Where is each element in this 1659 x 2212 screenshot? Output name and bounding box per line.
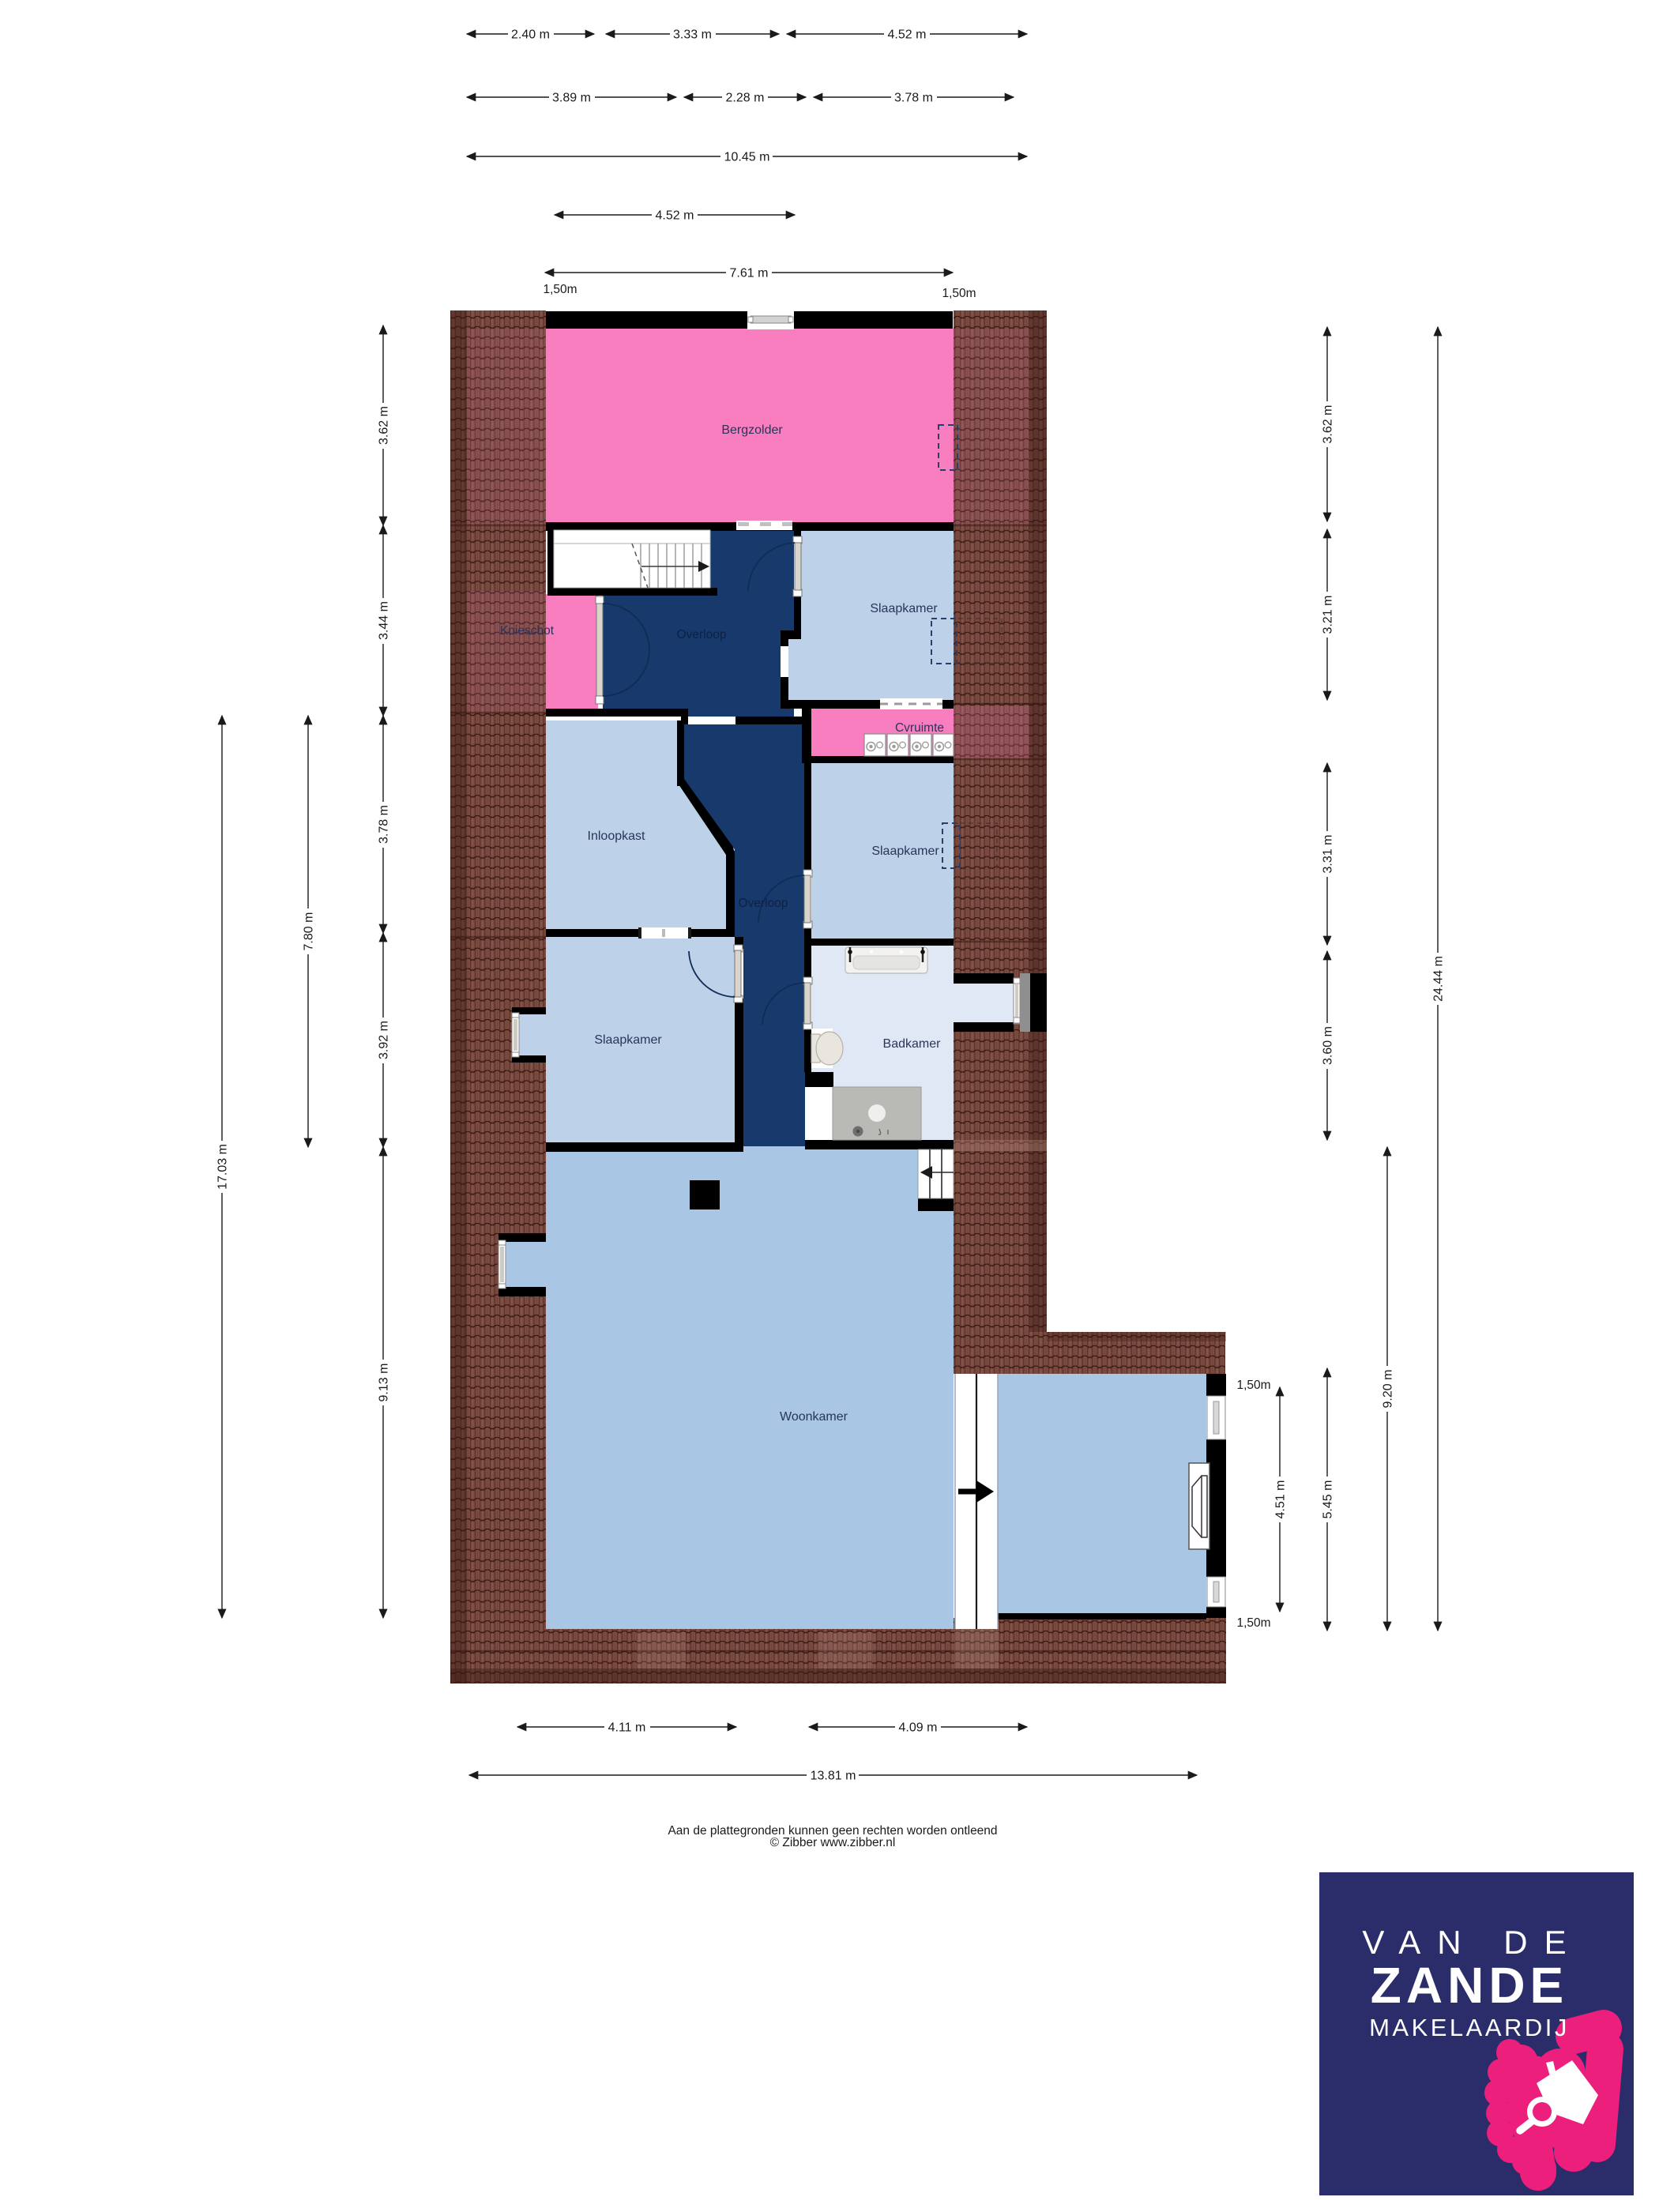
svg-text:3.31 m: 3.31 m (1322, 835, 1335, 874)
svg-text:3.44 m: 3.44 m (378, 601, 391, 640)
svg-text:3.62 m: 3.62 m (378, 406, 391, 445)
svg-text:4.52 m: 4.52 m (888, 28, 927, 42)
svg-text:7.80 m: 7.80 m (303, 912, 316, 951)
svg-text:3.89 m: 3.89 m (552, 92, 591, 105)
svg-text:Woonkamer: Woonkamer (780, 1410, 848, 1424)
svg-text:9.20 m: 9.20 m (1382, 1370, 1395, 1409)
svg-text:1,50m: 1,50m (1236, 1616, 1270, 1630)
svg-text:13.81 m: 13.81 m (811, 1770, 856, 1783)
svg-text:3.21 m: 3.21 m (1322, 596, 1335, 634)
svg-text:3.78 m: 3.78 m (894, 92, 933, 105)
svg-text:ZANDE: ZANDE (1371, 1957, 1568, 2014)
svg-text:17.03 m: 17.03 m (216, 1144, 230, 1190)
svg-text:Inloopkast: Inloopkast (588, 829, 645, 843)
svg-text:Slaapkamer: Slaapkamer (870, 602, 938, 615)
svg-text:7.61 m: 7.61 m (730, 267, 769, 280)
svg-text:10.45 m: 10.45 m (724, 151, 770, 164)
svg-text:3.62 m: 3.62 m (1322, 405, 1335, 444)
svg-text:Overloop: Overloop (677, 628, 727, 641)
svg-text:Knieschot: Knieschot (500, 624, 555, 638)
svg-text:Slaapkamer: Slaapkamer (871, 845, 939, 858)
svg-text:Badkamer: Badkamer (883, 1037, 942, 1051)
svg-text:9.13 m: 9.13 m (378, 1364, 391, 1402)
svg-text:Overloop: Overloop (739, 897, 788, 910)
svg-text:2.28 m: 2.28 m (726, 92, 765, 105)
svg-text:4.52 m: 4.52 m (656, 209, 694, 223)
svg-text:Cvruimte: Cvruimte (895, 721, 944, 735)
svg-text:3.60 m: 3.60 m (1322, 1026, 1335, 1065)
svg-text:VAN DE: VAN DE (1362, 1924, 1582, 1961)
svg-text:4.11 m: 4.11 m (608, 1721, 646, 1735)
svg-text:1,50m: 1,50m (942, 287, 976, 300)
svg-text:Slaapkamer: Slaapkamer (594, 1033, 662, 1047)
svg-text:MAKELAARDIJ: MAKELAARDIJ (1369, 2014, 1570, 2041)
svg-text:24.44 m: 24.44 m (1432, 956, 1446, 1002)
svg-text:1,50m: 1,50m (1236, 1379, 1270, 1392)
svg-text:4.09 m: 4.09 m (899, 1721, 938, 1735)
svg-text:3.92 m: 3.92 m (378, 1021, 391, 1059)
svg-text:Bergzolder: Bergzolder (721, 423, 783, 437)
svg-text:1,50m: 1,50m (543, 283, 577, 296)
svg-text:5.45 m: 5.45 m (1322, 1480, 1335, 1519)
svg-text:© Zibber www.zibber.nl: © Zibber www.zibber.nl (770, 1836, 896, 1849)
svg-text:4.51 m: 4.51 m (1274, 1480, 1288, 1519)
svg-text:3.33 m: 3.33 m (673, 28, 712, 42)
svg-text:3.78 m: 3.78 m (378, 805, 391, 844)
svg-text:2.40 m: 2.40 m (511, 28, 550, 42)
